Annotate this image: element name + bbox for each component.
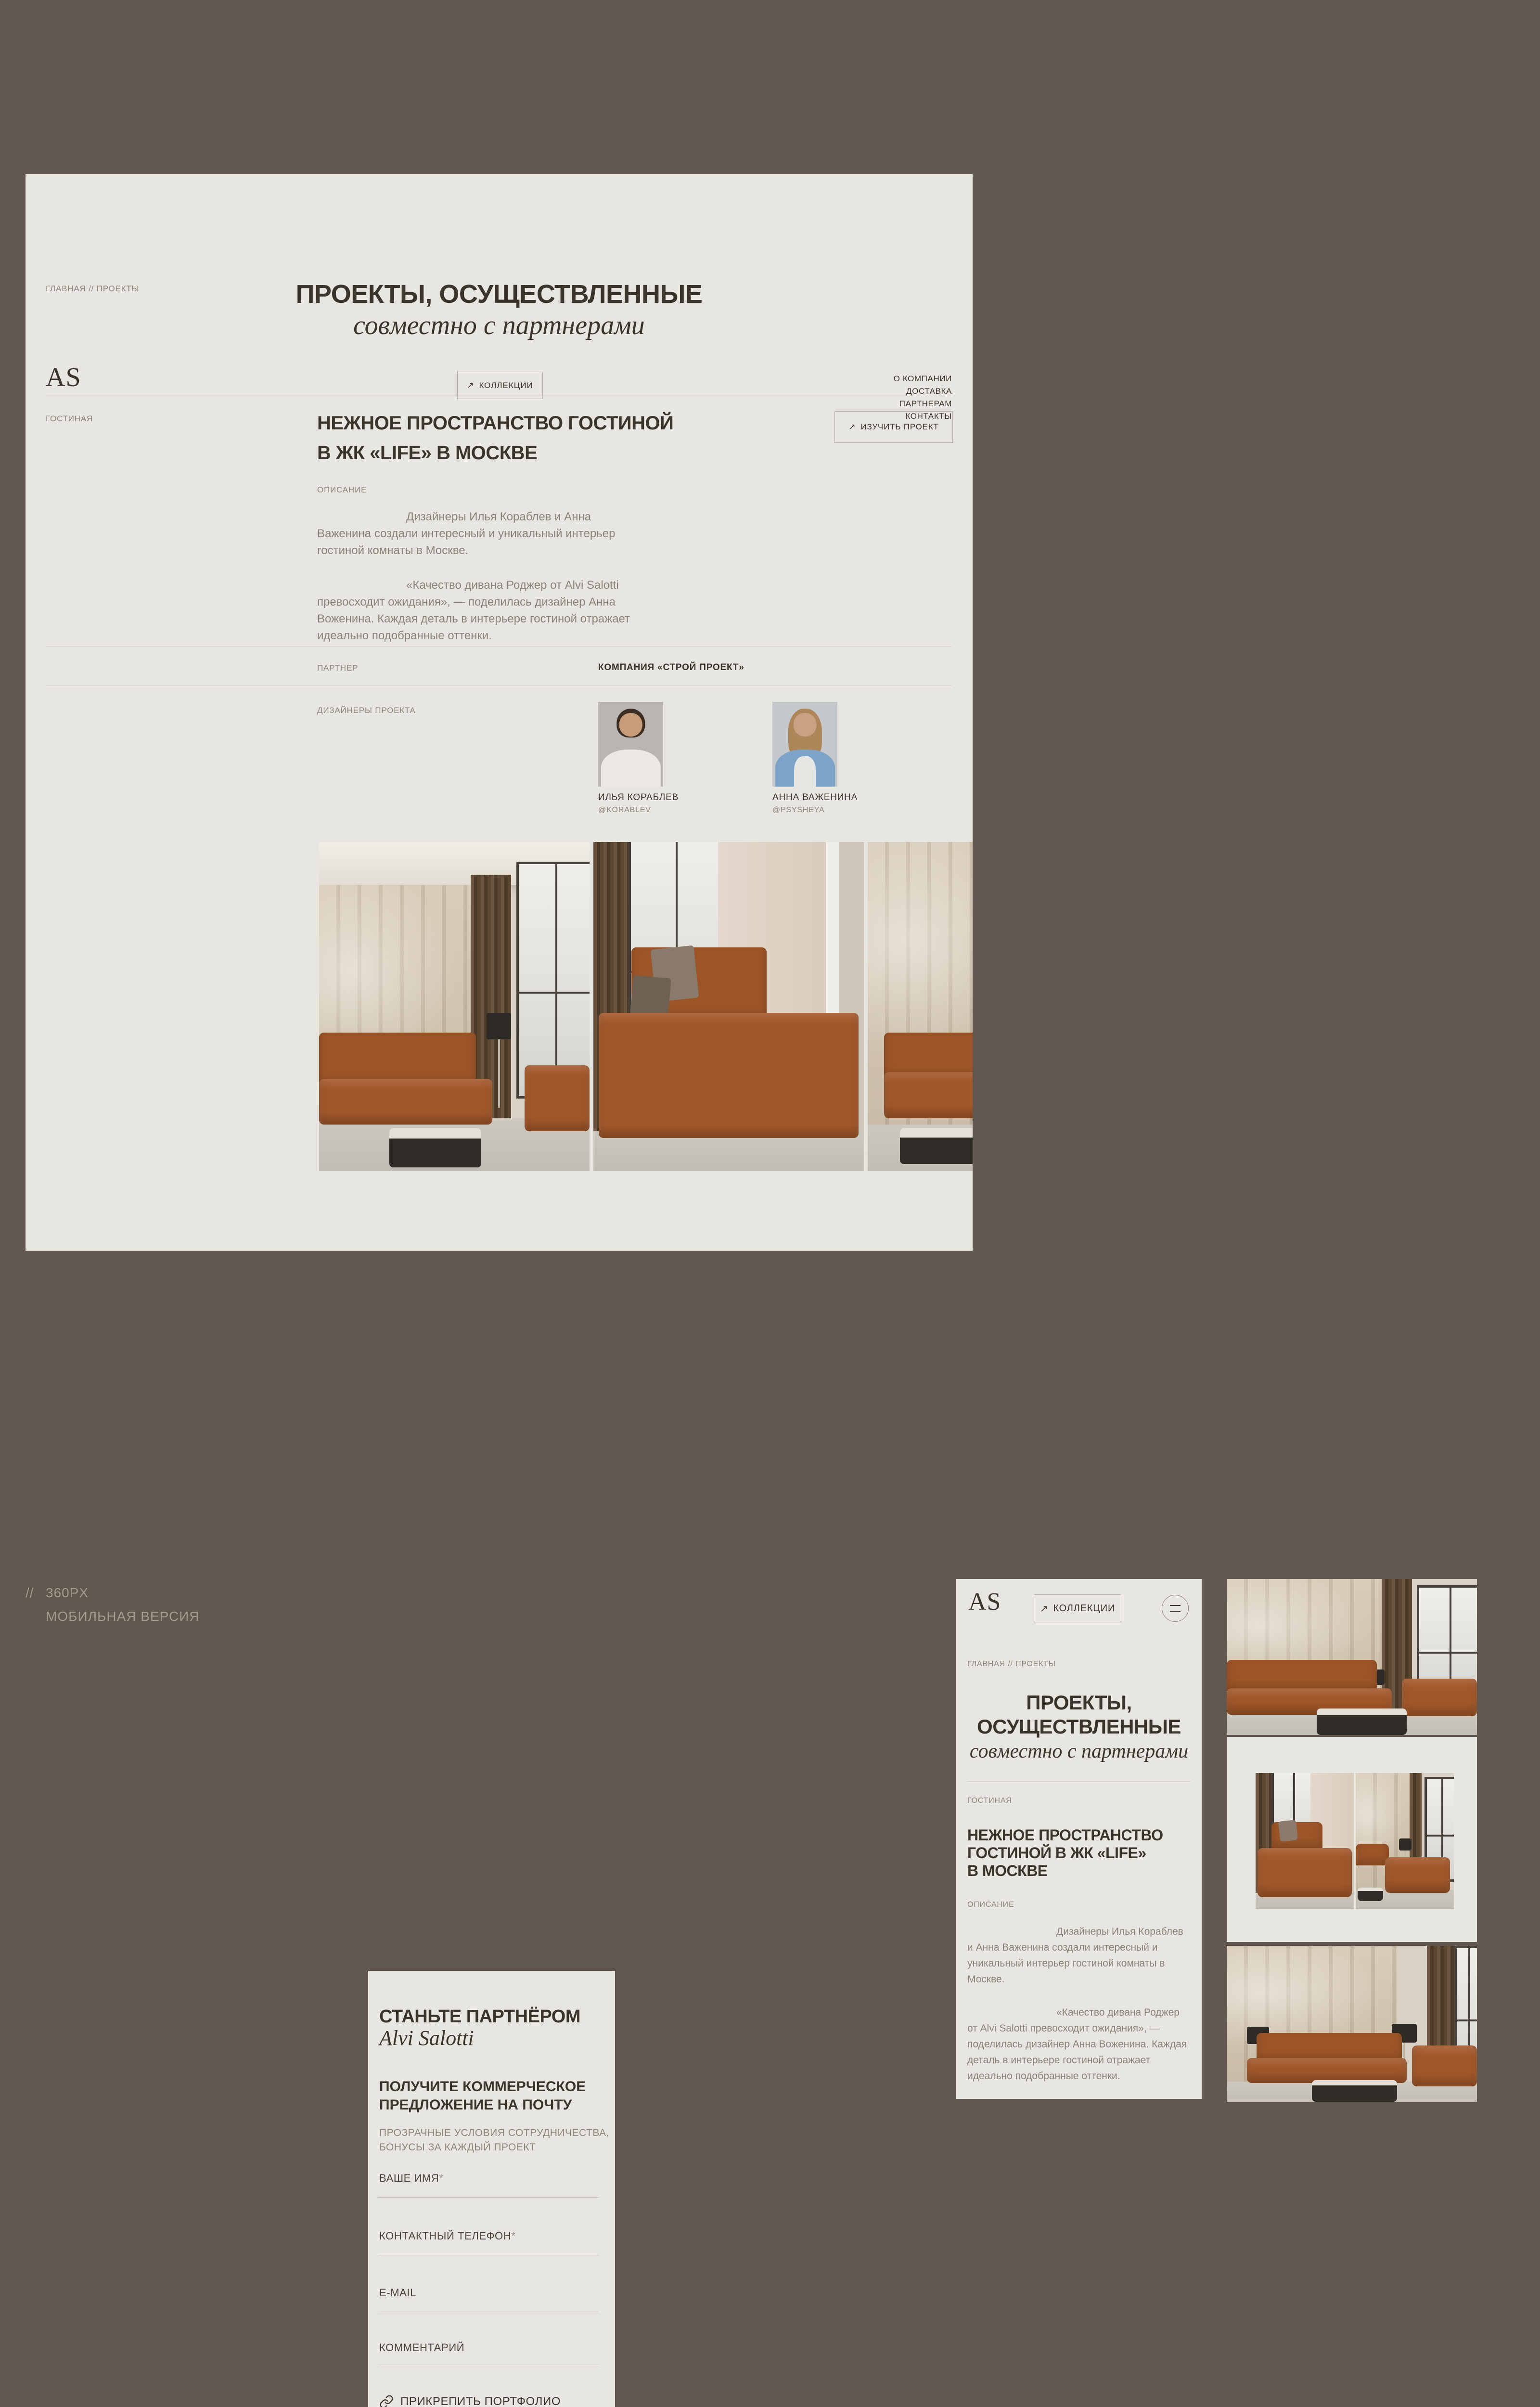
attach-portfolio-label: ПРИКРЕПИТЬ ПОРТФОЛИО <box>400 2395 561 2407</box>
project-title-line1: НЕЖНОЕ ПРОСТРАНСТВО <box>967 1826 1163 1844</box>
required-mark: * <box>439 2172 443 2184</box>
mobile-shot-corner <box>1356 1773 1454 1909</box>
form-note-line1: ПРОЗРАЧНЫЕ УСЛОВИЯ СОТРУДНИЧЕСТВА, <box>379 2126 609 2140</box>
menu-button[interactable] <box>1162 1595 1189 1622</box>
divider <box>46 396 952 396</box>
mobile-gallery-panel <box>1227 1737 1477 1942</box>
comment-field-label: КОММЕНТАРИЙ <box>379 2342 464 2354</box>
description-paragraph-1: Дизайнеры Илья Кораблев и Анна Важенина … <box>317 508 642 559</box>
collections-button-label: КОЛЛЕКЦИИ <box>1053 1603 1115 1614</box>
project-title: НЕЖНОЕ ПРОСТРАНСТВО ГОСТИНОЙ В ЖК «LIFE»… <box>317 408 673 468</box>
link-icon <box>379 2394 394 2407</box>
hamburger-icon <box>1170 1605 1181 1612</box>
project-category-label: ГОСТИНАЯ <box>46 414 93 424</box>
project-title-line2: ГОСТИНОЙ В ЖК «LIFE» <box>967 1844 1163 1862</box>
portrait-shirt <box>601 750 660 787</box>
presentation-canvas: AS ↗ КОЛЛЕКЦИИ О КОМПАНИИ ДОСТАВКА ПАРТН… <box>0 0 1540 2407</box>
breadcrumb[interactable]: ГЛАВНАЯ // ПРОЕКТЫ <box>967 1660 1056 1669</box>
comment-input[interactable] <box>378 2365 599 2365</box>
collections-button-label: КОЛЛЕКЦИИ <box>479 381 533 390</box>
required-mark: * <box>511 2230 515 2242</box>
page-title-line2: совместно с партнерами <box>26 311 973 340</box>
partner-form-mockup: СТАНЬТЕ ПАРТНЁРОМ Alvi Salotti ПОЛУЧИТЕ … <box>368 1971 615 2407</box>
designer-handle[interactable]: @PSYSHEYA <box>772 806 825 815</box>
portrait-shirt <box>794 756 816 787</box>
mobile-note-version: МОБИЛЬНАЯ ВЕРСИЯ <box>46 1605 200 1628</box>
mobile-shot-chaise <box>1256 1773 1354 1909</box>
description-paragraph-1: Дизайнеры Илья Кораблев и Анна Важенина … <box>967 1924 1192 1987</box>
form-note: ПРОЗРАЧНЫЕ УСЛОВИЯ СОТРУДНИЧЕСТВА, БОНУС… <box>379 2126 609 2155</box>
arrow-up-right-icon: ↗ <box>467 381 474 390</box>
desktop-mockup: AS ↗ КОЛЛЕКЦИИ О КОМПАНИИ ДОСТАВКА ПАРТН… <box>26 174 973 1251</box>
page-title-line1: ПРОЕКТЫ, <box>956 1691 1202 1715</box>
attach-portfolio-link[interactable]: ПРИКРЕПИТЬ ПОРТФОЛИО <box>379 2394 561 2407</box>
project-title-line2: В ЖК «LIFE» В МОСКВЕ <box>317 438 673 468</box>
mobile-note: 360PX МОБИЛЬНАЯ ВЕРСИЯ <box>46 1581 200 1628</box>
form-note-line2: БОНУСЫ ЗА КАЖДЫЙ ПРОЕКТ <box>379 2140 609 2155</box>
divider <box>46 686 952 686</box>
mobile-note-slashes: // <box>26 1581 34 1605</box>
email-field-label: E-MAIL <box>379 2287 416 2299</box>
gallery-photo-living-room <box>319 842 590 1171</box>
explore-project-button[interactable]: ↗ ИЗУЧИТЬ ПРОЕКТ <box>834 411 953 443</box>
designer-handle[interactable]: @KORABLEV <box>598 806 651 815</box>
divider <box>46 646 952 647</box>
collections-button[interactable]: ↗ КОЛЛЕКЦИИ <box>1034 1594 1121 1622</box>
gallery-photo-panel-wall <box>868 842 973 1171</box>
project-title-line1: НЕЖНОЕ ПРОСТРАНСТВО ГОСТИНОЙ <box>317 408 673 438</box>
collections-button[interactable]: ↗ КОЛЛЕКЦИИ <box>457 372 543 399</box>
page-title-line2: ОСУЩЕСТВЛЕННЫЕ <box>956 1715 1202 1739</box>
gallery-photo-chaise <box>593 842 864 1171</box>
email-input[interactable] <box>378 2312 599 2312</box>
page-title-line1: ПРОЕКТЫ, ОСУЩЕСТВЛЕННЫЕ <box>26 280 973 308</box>
phone-input[interactable] <box>378 2255 599 2255</box>
designer-photo <box>772 702 837 787</box>
mobile-note-size: 360PX <box>46 1581 200 1605</box>
explore-project-label: ИЗУЧИТЬ ПРОЕКТ <box>860 422 938 432</box>
description-paragraph-2: «Качество дивана Роджер от Alvi Salotti … <box>967 2005 1192 2084</box>
project-title-line3: В МОСКВЕ <box>967 1862 1163 1880</box>
designer-photo <box>598 702 663 787</box>
description-paragraph-2: «Качество дивана Роджер от Alvi Salotti … <box>317 577 642 644</box>
portrait-face <box>793 713 817 737</box>
project-title: НЕЖНОЕ ПРОСТРАНСТВО ГОСТИНОЙ В ЖК «LIFE»… <box>967 1826 1163 1880</box>
form-title-line1: СТАНЬТЕ ПАРТНЁРОМ <box>379 2006 580 2027</box>
partner-label: ПАРТНЕР <box>317 663 358 673</box>
mobile-mockup: AS ↗ КОЛЛЕКЦИИ ГЛАВНАЯ // ПРОЕКТЫ ПРОЕКТ… <box>956 1579 1202 2099</box>
partner-value: КОМПАНИЯ «СТРОЙ ПРОЕКТ» <box>598 662 744 673</box>
description-label: ОПИСАНИЕ <box>317 485 367 495</box>
form-subtitle-line2: ПРЕДЛОЖЕНИЕ НА ПОЧТУ <box>379 2096 586 2114</box>
divider <box>967 1781 1191 1782</box>
nav-item-about[interactable]: О КОМПАНИИ <box>894 373 952 385</box>
designer-name: ИЛЬЯ КОРАБЛЕВ <box>598 792 679 803</box>
logo[interactable]: AS <box>968 1590 1001 1615</box>
arrow-up-right-icon: ↗ <box>848 422 856 432</box>
form-subtitle-line1: ПОЛУЧИТЕ КОММЕРЧЕСКОЕ <box>379 2078 586 2096</box>
name-field-label: ВАШЕ ИМЯ* <box>379 2172 444 2185</box>
phone-field-label: КОНТАКТНЫЙ ТЕЛЕФОН* <box>379 2230 515 2242</box>
logo[interactable]: AS <box>46 364 81 391</box>
mobile-shot-bottom <box>1227 1946 1477 2102</box>
portrait-face <box>619 713 642 737</box>
name-input[interactable] <box>378 2197 599 2198</box>
designers-label: ДИЗАЙНЕРЫ ПРОЕКТА <box>317 706 416 715</box>
project-category-label: ГОСТИНАЯ <box>967 1797 1012 1805</box>
page-title: ПРОЕКТЫ, ОСУЩЕСТВЛЕННЫЕ <box>956 1691 1202 1739</box>
mobile-shot-top <box>1227 1579 1477 1735</box>
form-subtitle: ПОЛУЧИТЕ КОММЕРЧЕСКОЕ ПРЕДЛОЖЕНИЕ НА ПОЧ… <box>379 2078 586 2114</box>
form-title-line2: Alvi Salotti <box>379 2027 474 2050</box>
designer-name: АННА ВАЖЕНИНА <box>772 792 858 803</box>
description-label: ОПИСАНИЕ <box>967 1901 1014 1909</box>
arrow-up-right-icon: ↗ <box>1040 1603 1049 1614</box>
page-title-line3: совместно с партнерами <box>956 1740 1202 1763</box>
nav-item-partners[interactable]: ПАРТНЕРАМ <box>894 398 952 410</box>
